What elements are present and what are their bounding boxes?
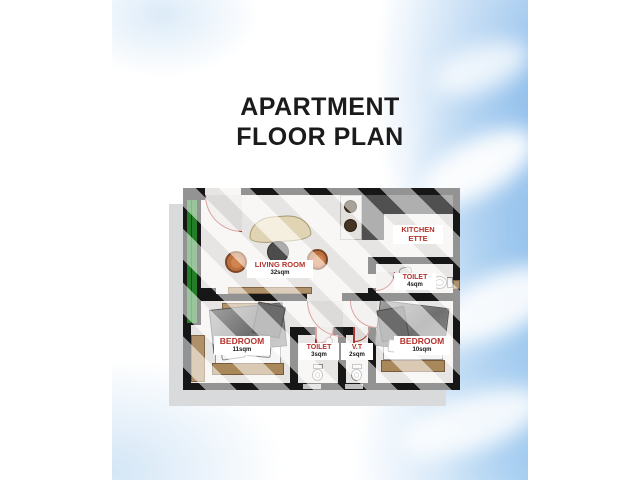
wall — [241, 188, 460, 195]
bedroom-right-label: BEDROOM 10sqm — [394, 336, 450, 355]
page-title: APARTMENT FLOOR PLAN — [112, 92, 528, 152]
toilet-small-label: TOILET 3sqm — [299, 343, 339, 360]
tv-console — [228, 287, 312, 294]
toilet-main-label: TOILET 4sqm — [394, 273, 436, 290]
page: { "title": { "line1": "APARTMENT", "line… — [0, 0, 640, 480]
wall — [368, 288, 376, 293]
kitchen-counter-dark — [384, 195, 453, 214]
wall — [290, 327, 315, 335]
kitchen-counter-dark — [362, 195, 384, 240]
toilet-icon — [351, 364, 363, 383]
armchair-left — [225, 251, 247, 273]
wall — [453, 188, 460, 390]
sink-basin-icon — [344, 219, 357, 232]
toilet-icon — [312, 364, 324, 383]
toilet-main-door-arc — [376, 272, 395, 291]
door-panel-divider — [191, 200, 192, 323]
bedroom-right-door-arc — [350, 301, 377, 328]
title-line-1: APARTMENT — [112, 92, 528, 122]
balcony-door-frame — [183, 198, 201, 325]
wall — [342, 293, 460, 301]
window-sill — [453, 280, 460, 289]
wall — [183, 325, 191, 390]
sink-basin-icon — [344, 200, 357, 213]
wardrobe — [191, 335, 205, 382]
entrance-door-arc — [205, 195, 242, 232]
floor-plan: LIVING ROOM 32sqm KITCHEN ETTE TOILET 4s… — [183, 188, 460, 390]
wall — [183, 383, 460, 390]
vt-label: V.T 2sqm — [341, 343, 373, 360]
wall — [205, 294, 307, 301]
kitchenette-label: KITCHEN ETTE — [393, 225, 443, 244]
headboard — [212, 363, 284, 375]
wall — [368, 257, 453, 264]
title-line-2: FLOOR PLAN — [112, 122, 528, 152]
bedroom-left-label: BEDROOM 11sqm — [214, 336, 270, 355]
window — [345, 384, 363, 389]
wall — [290, 327, 298, 383]
headboard — [381, 360, 445, 372]
sofa — [248, 214, 312, 244]
wall — [368, 264, 376, 274]
balcony-sliding-door — [187, 200, 197, 323]
living-room-label: LIVING ROOM 32sqm — [247, 260, 313, 278]
window — [303, 384, 321, 389]
